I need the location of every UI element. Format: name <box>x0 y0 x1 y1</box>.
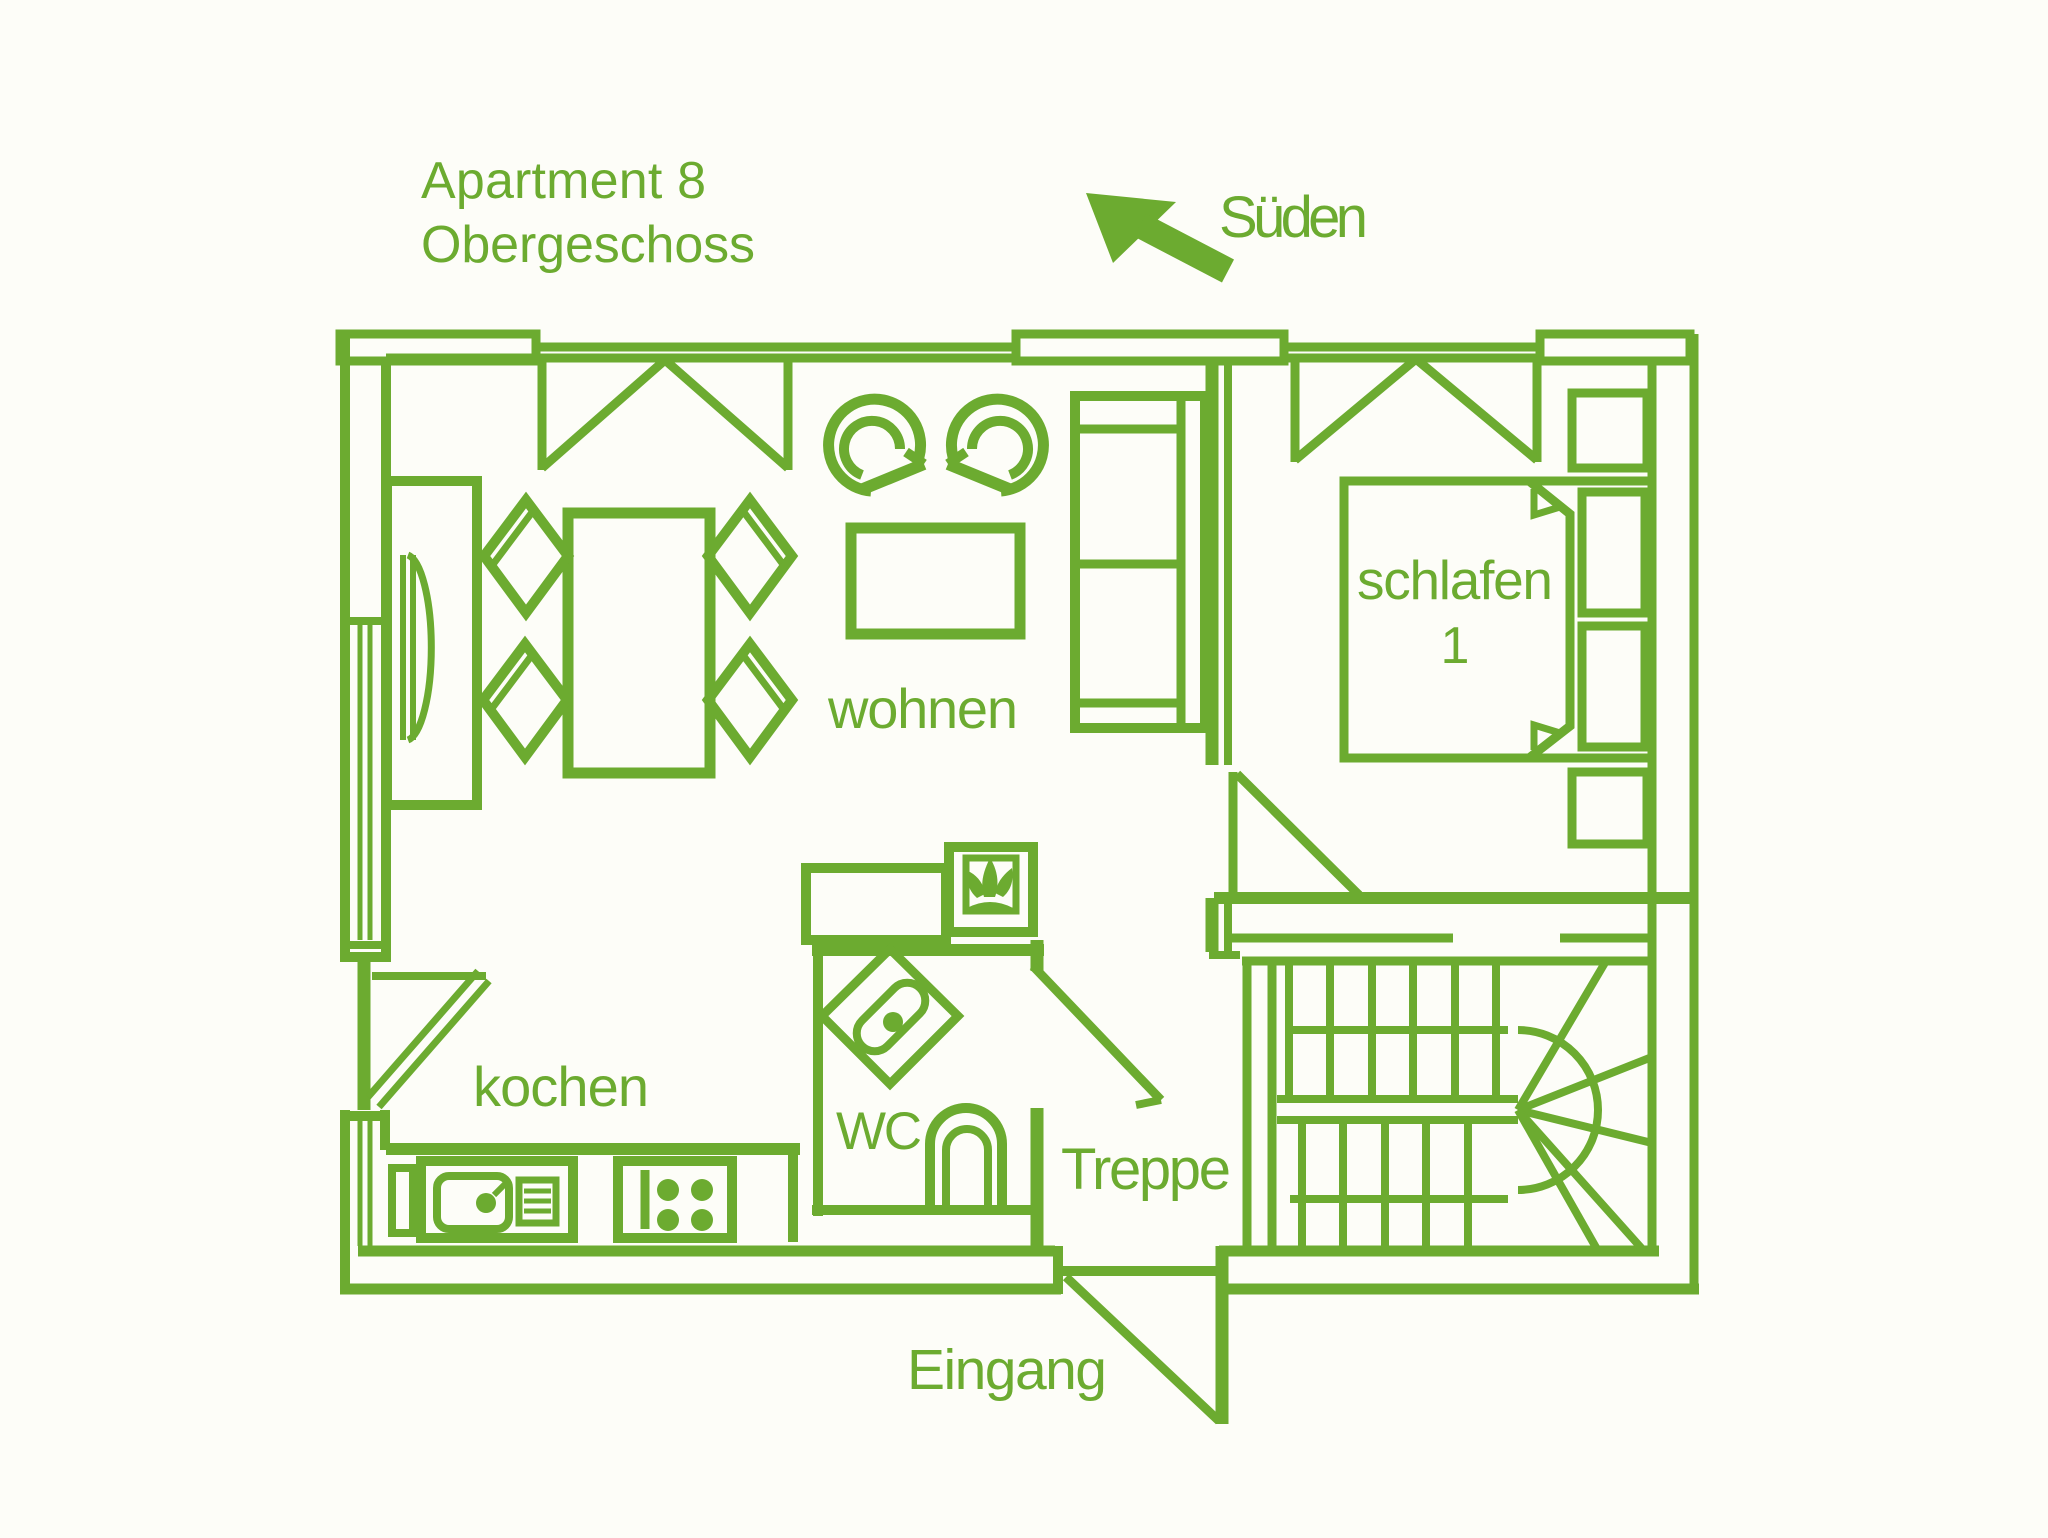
svg-text:1: 1 <box>1441 617 1470 675</box>
svg-text:Eingang: Eingang <box>907 1338 1107 1402</box>
svg-text:wohnen: wohnen <box>827 677 1018 740</box>
svg-text:WC: WC <box>836 1102 922 1161</box>
svg-text:schlafen: schlafen <box>1357 549 1553 611</box>
svg-text:Treppe: Treppe <box>1061 1137 1231 1202</box>
svg-text:Süden: Süden <box>1219 185 1368 250</box>
svg-text:Apartment 8: Apartment 8 <box>421 152 706 210</box>
svg-text:kochen: kochen <box>473 1055 649 1118</box>
svg-text:Obergeschoss: Obergeschoss <box>421 216 755 274</box>
